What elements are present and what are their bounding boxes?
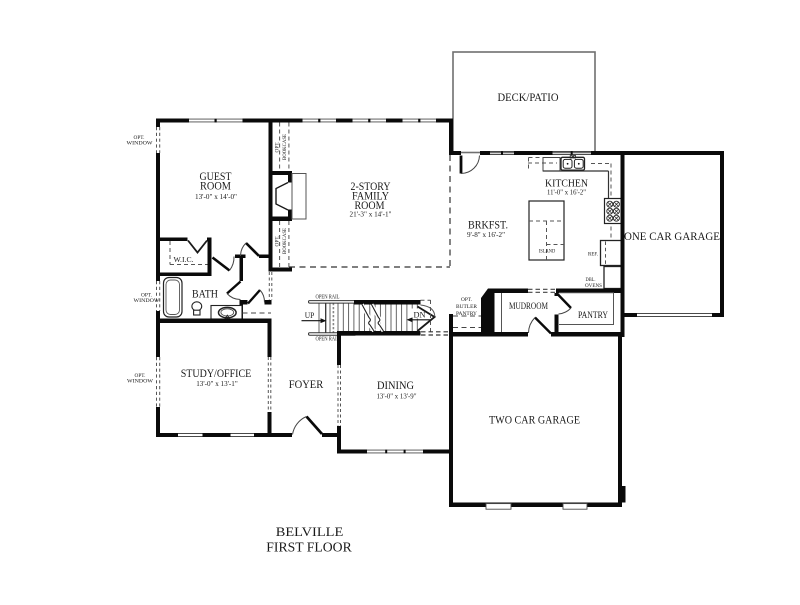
svg-text:OPT.: OPT. [461, 298, 472, 303]
svg-text:OVENS: OVENS [585, 284, 602, 289]
svg-text:TWO CAR GARAGE: TWO CAR GARAGE [489, 413, 580, 427]
svg-text:WINDOW: WINDOW [127, 380, 153, 385]
svg-text:FOYER: FOYER [289, 377, 324, 391]
svg-text:MUDROOM: MUDROOM [509, 302, 548, 312]
svg-text:13'-0" x 14'-0": 13'-0" x 14'-0" [195, 192, 237, 201]
svg-text:BUTLER: BUTLER [456, 305, 478, 310]
svg-text:REF.: REF. [588, 253, 598, 258]
svg-text:BOOKCASE: BOOKCASE [283, 134, 288, 160]
svg-text:ONE CAR GARAGE: ONE CAR GARAGE [624, 229, 720, 243]
svg-text:FIRST FLOOR: FIRST FLOOR [266, 541, 352, 556]
svg-text:WINDOW: WINDOW [127, 142, 153, 147]
svg-text:13'-0" x 13'-1": 13'-0" x 13'-1" [196, 379, 238, 388]
svg-text:OPT.: OPT. [135, 374, 146, 379]
svg-text:ISLAND: ISLAND [539, 249, 556, 255]
svg-text:UP: UP [305, 311, 315, 320]
svg-text:DINING: DINING [377, 378, 414, 392]
svg-text:W.I.C.: W.I.C. [174, 255, 194, 264]
svg-text:21'-3" x 14'-1": 21'-3" x 14'-1" [350, 210, 392, 219]
svg-text:OPT.: OPT. [141, 294, 152, 299]
svg-text:DECK/PATIO: DECK/PATIO [498, 90, 559, 104]
svg-text:DN: DN [414, 311, 426, 320]
svg-text:OPT.: OPT. [275, 236, 280, 247]
svg-text:WINDOW: WINDOW [134, 299, 160, 304]
svg-text:OPEN RAIL: OPEN RAIL [316, 337, 340, 343]
svg-text:DBL.: DBL. [586, 278, 596, 283]
svg-text:OPT.: OPT. [275, 142, 280, 153]
svg-text:BATH: BATH [192, 287, 218, 301]
svg-text:STUDY/OFFICE: STUDY/OFFICE [181, 366, 252, 380]
svg-text:OPT.: OPT. [134, 136, 145, 141]
svg-text:ROOM: ROOM [200, 179, 231, 193]
svg-text:PANTRY: PANTRY [578, 311, 608, 321]
svg-text:OPEN RAIL: OPEN RAIL [316, 295, 340, 301]
svg-text:13'-0" x 13'-9": 13'-0" x 13'-9" [377, 392, 417, 401]
svg-text:BELVILLE: BELVILLE [276, 525, 344, 539]
svg-text:BOOKCASE: BOOKCASE [283, 228, 288, 254]
svg-text:9'-8" x 16'-2": 9'-8" x 16'-2" [467, 230, 505, 239]
svg-text:11'-0" x 16'-2": 11'-0" x 16'-2" [547, 189, 586, 197]
